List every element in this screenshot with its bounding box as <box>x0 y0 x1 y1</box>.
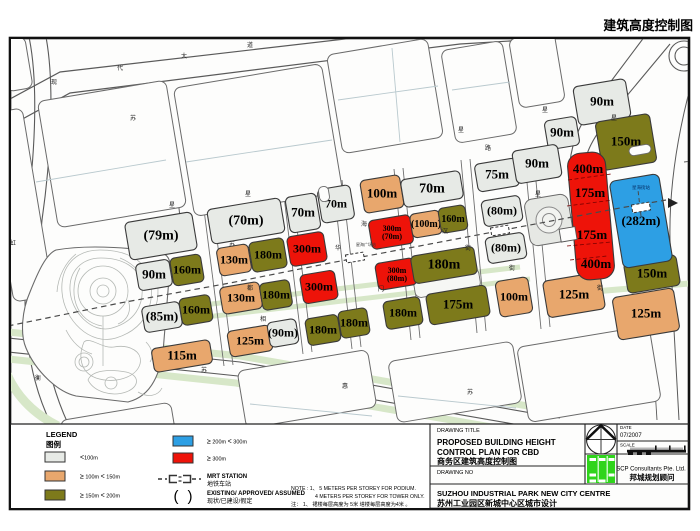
svg-text:07/2007: 07/2007 <box>620 433 642 439</box>
svg-text:(70m): (70m) <box>382 232 402 241</box>
svg-text:<100m: <100m <box>80 455 98 462</box>
svg-text:道: 道 <box>247 41 253 49</box>
svg-text:(70m): (70m) <box>229 214 264 229</box>
svg-text:星海街站: 星海街站 <box>632 184 650 191</box>
svg-text:125m: 125m <box>236 333 264 347</box>
svg-text:180m: 180m <box>254 247 282 261</box>
svg-text:100m: 100m <box>500 289 528 303</box>
svg-text:130m: 130m <box>220 252 248 266</box>
svg-text:代: 代 <box>117 64 123 72</box>
svg-text:DRAWING NO: DRAWING NO <box>437 470 474 476</box>
svg-text:建筑高度控制图: 建筑高度控制图 <box>603 18 693 33</box>
svg-text:180m: 180m <box>309 322 337 336</box>
svg-text:星: 星 <box>458 127 464 134</box>
svg-text:海: 海 <box>361 220 367 228</box>
svg-text:现: 现 <box>51 79 57 86</box>
svg-text:180m: 180m <box>428 258 461 273</box>
svg-text:LEGEND: LEGEND <box>46 430 78 439</box>
svg-text:160m: 160m <box>182 302 210 316</box>
svg-text:≥ 200m < 300m: ≥ 200m < 300m <box>207 439 247 446</box>
svg-text:苏州工业园区新城中心区城市设计: 苏州工业园区新城中心区城市设计 <box>437 498 557 508</box>
svg-text:(80m): (80m) <box>491 240 521 254</box>
svg-text:地铁车站: 地铁车站 <box>207 480 231 488</box>
svg-text:): ) <box>188 488 193 505</box>
svg-text:星: 星 <box>169 202 175 209</box>
svg-text:90m: 90m <box>525 155 549 170</box>
svg-text:(80m): (80m) <box>387 274 407 283</box>
svg-text:街: 街 <box>509 264 515 272</box>
svg-text:相: 相 <box>260 315 266 323</box>
svg-text:街: 街 <box>597 284 603 292</box>
svg-text:160m: 160m <box>441 214 465 225</box>
svg-text:星: 星 <box>535 191 541 198</box>
svg-text:汉: 汉 <box>442 227 448 235</box>
svg-text:MRT STATION: MRT STATION <box>207 474 247 480</box>
svg-text:160m: 160m <box>173 262 201 276</box>
svg-text:苏: 苏 <box>130 114 136 122</box>
svg-text:70m: 70m <box>291 204 315 219</box>
svg-text:苏: 苏 <box>229 240 235 248</box>
svg-text:125m: 125m <box>559 286 590 301</box>
svg-text:商务区建筑高度控制图: 商务区建筑高度控制图 <box>437 456 517 466</box>
svg-text:4 METERS PER STOREY FOR TOWER: 4 METERS PER STOREY FOR TOWER ONLY. <box>315 494 425 500</box>
svg-text:90m: 90m <box>590 93 614 108</box>
svg-text:(85m): (85m) <box>146 308 179 323</box>
svg-text:400m: 400m <box>573 161 604 176</box>
svg-text:现状/已建设/假定: 现状/已建设/假定 <box>207 497 252 505</box>
svg-text:CONTROL PLAN FOR CBD: CONTROL PLAN FOR CBD <box>437 448 539 457</box>
svg-text:注： 1、 裙楼每层高度为 5米 塔楼每层高度为4米: 注： 1、 裙楼每层高度为 5米 塔楼每层高度为4米 。 <box>291 500 411 508</box>
svg-text:(90m): (90m) <box>268 325 298 339</box>
svg-text:SCALE: SCALE <box>620 443 635 448</box>
svg-text:150m: 150m <box>637 265 668 280</box>
svg-text:DATE: DATE <box>620 425 632 430</box>
svg-text:DRAWING TITLE: DRAWING TITLE <box>437 428 480 434</box>
svg-text:175m: 175m <box>575 185 606 200</box>
svg-text:衡: 衡 <box>35 374 41 382</box>
svg-text:130m: 130m <box>227 290 255 304</box>
svg-text:图例: 图例 <box>46 439 61 449</box>
svg-text:PROPOSED BUILDING HEIGHT: PROPOSED BUILDING HEIGHT <box>437 438 556 447</box>
svg-text:≥ 150m < 200m: ≥ 150m < 200m <box>80 493 120 500</box>
svg-text:175m: 175m <box>577 227 608 242</box>
svg-text:175m: 175m <box>443 296 474 311</box>
svg-text:180m: 180m <box>389 305 417 319</box>
svg-text:星: 星 <box>611 115 617 122</box>
svg-text:街: 街 <box>465 244 471 252</box>
svg-text:300m: 300m <box>293 241 321 255</box>
svg-text:90m: 90m <box>142 266 166 281</box>
svg-text:SCP Consultants Pte. Ltd.: SCP Consultants Pte. Ltd. <box>616 467 686 473</box>
svg-text:星: 星 <box>245 191 251 198</box>
svg-text:路: 路 <box>485 144 491 152</box>
svg-text:华: 华 <box>335 244 341 252</box>
svg-text:SUZHOU INDUSTRIAL PARK NEW CIT: SUZHOU INDUSTRIAL PARK NEW CITY CENTRE <box>437 489 610 498</box>
svg-text:100m: 100m <box>367 185 398 200</box>
svg-text:(: ( <box>174 488 179 505</box>
svg-text:400m: 400m <box>581 256 612 271</box>
svg-text:(80m): (80m) <box>487 203 517 217</box>
svg-text:门: 门 <box>378 285 384 293</box>
svg-text:星: 星 <box>542 107 548 114</box>
svg-text:NOTE : 1、 5 METERS PER STOREY: NOTE : 1、 5 METERS PER STOREY FOR PODIUM… <box>291 486 416 492</box>
svg-text:75m: 75m <box>485 166 509 181</box>
svg-text:(79m): (79m) <box>144 229 179 244</box>
svg-text:都: 都 <box>247 284 253 292</box>
svg-text:90m: 90m <box>550 124 574 139</box>
svg-text:≥ 300m: ≥ 300m <box>207 456 227 463</box>
svg-text:苏: 苏 <box>201 366 207 374</box>
svg-text:125m: 125m <box>631 305 662 320</box>
svg-text:星海广场站: 星海广场站 <box>356 241 376 247</box>
svg-text:≥ 100m < 150m: ≥ 100m < 150m <box>80 474 120 481</box>
svg-text:180m: 180m <box>262 287 290 301</box>
svg-text:邦城规划顾问: 邦城规划顾问 <box>630 472 675 482</box>
svg-text:惠: 惠 <box>342 382 348 390</box>
svg-text:(100m): (100m) <box>411 219 441 230</box>
svg-text:苏: 苏 <box>467 388 473 396</box>
svg-text:115m: 115m <box>167 347 197 362</box>
svg-text:300m: 300m <box>305 279 333 293</box>
svg-text:70m: 70m <box>419 182 445 197</box>
svg-text:大: 大 <box>181 52 187 60</box>
svg-text:180m: 180m <box>340 315 368 329</box>
